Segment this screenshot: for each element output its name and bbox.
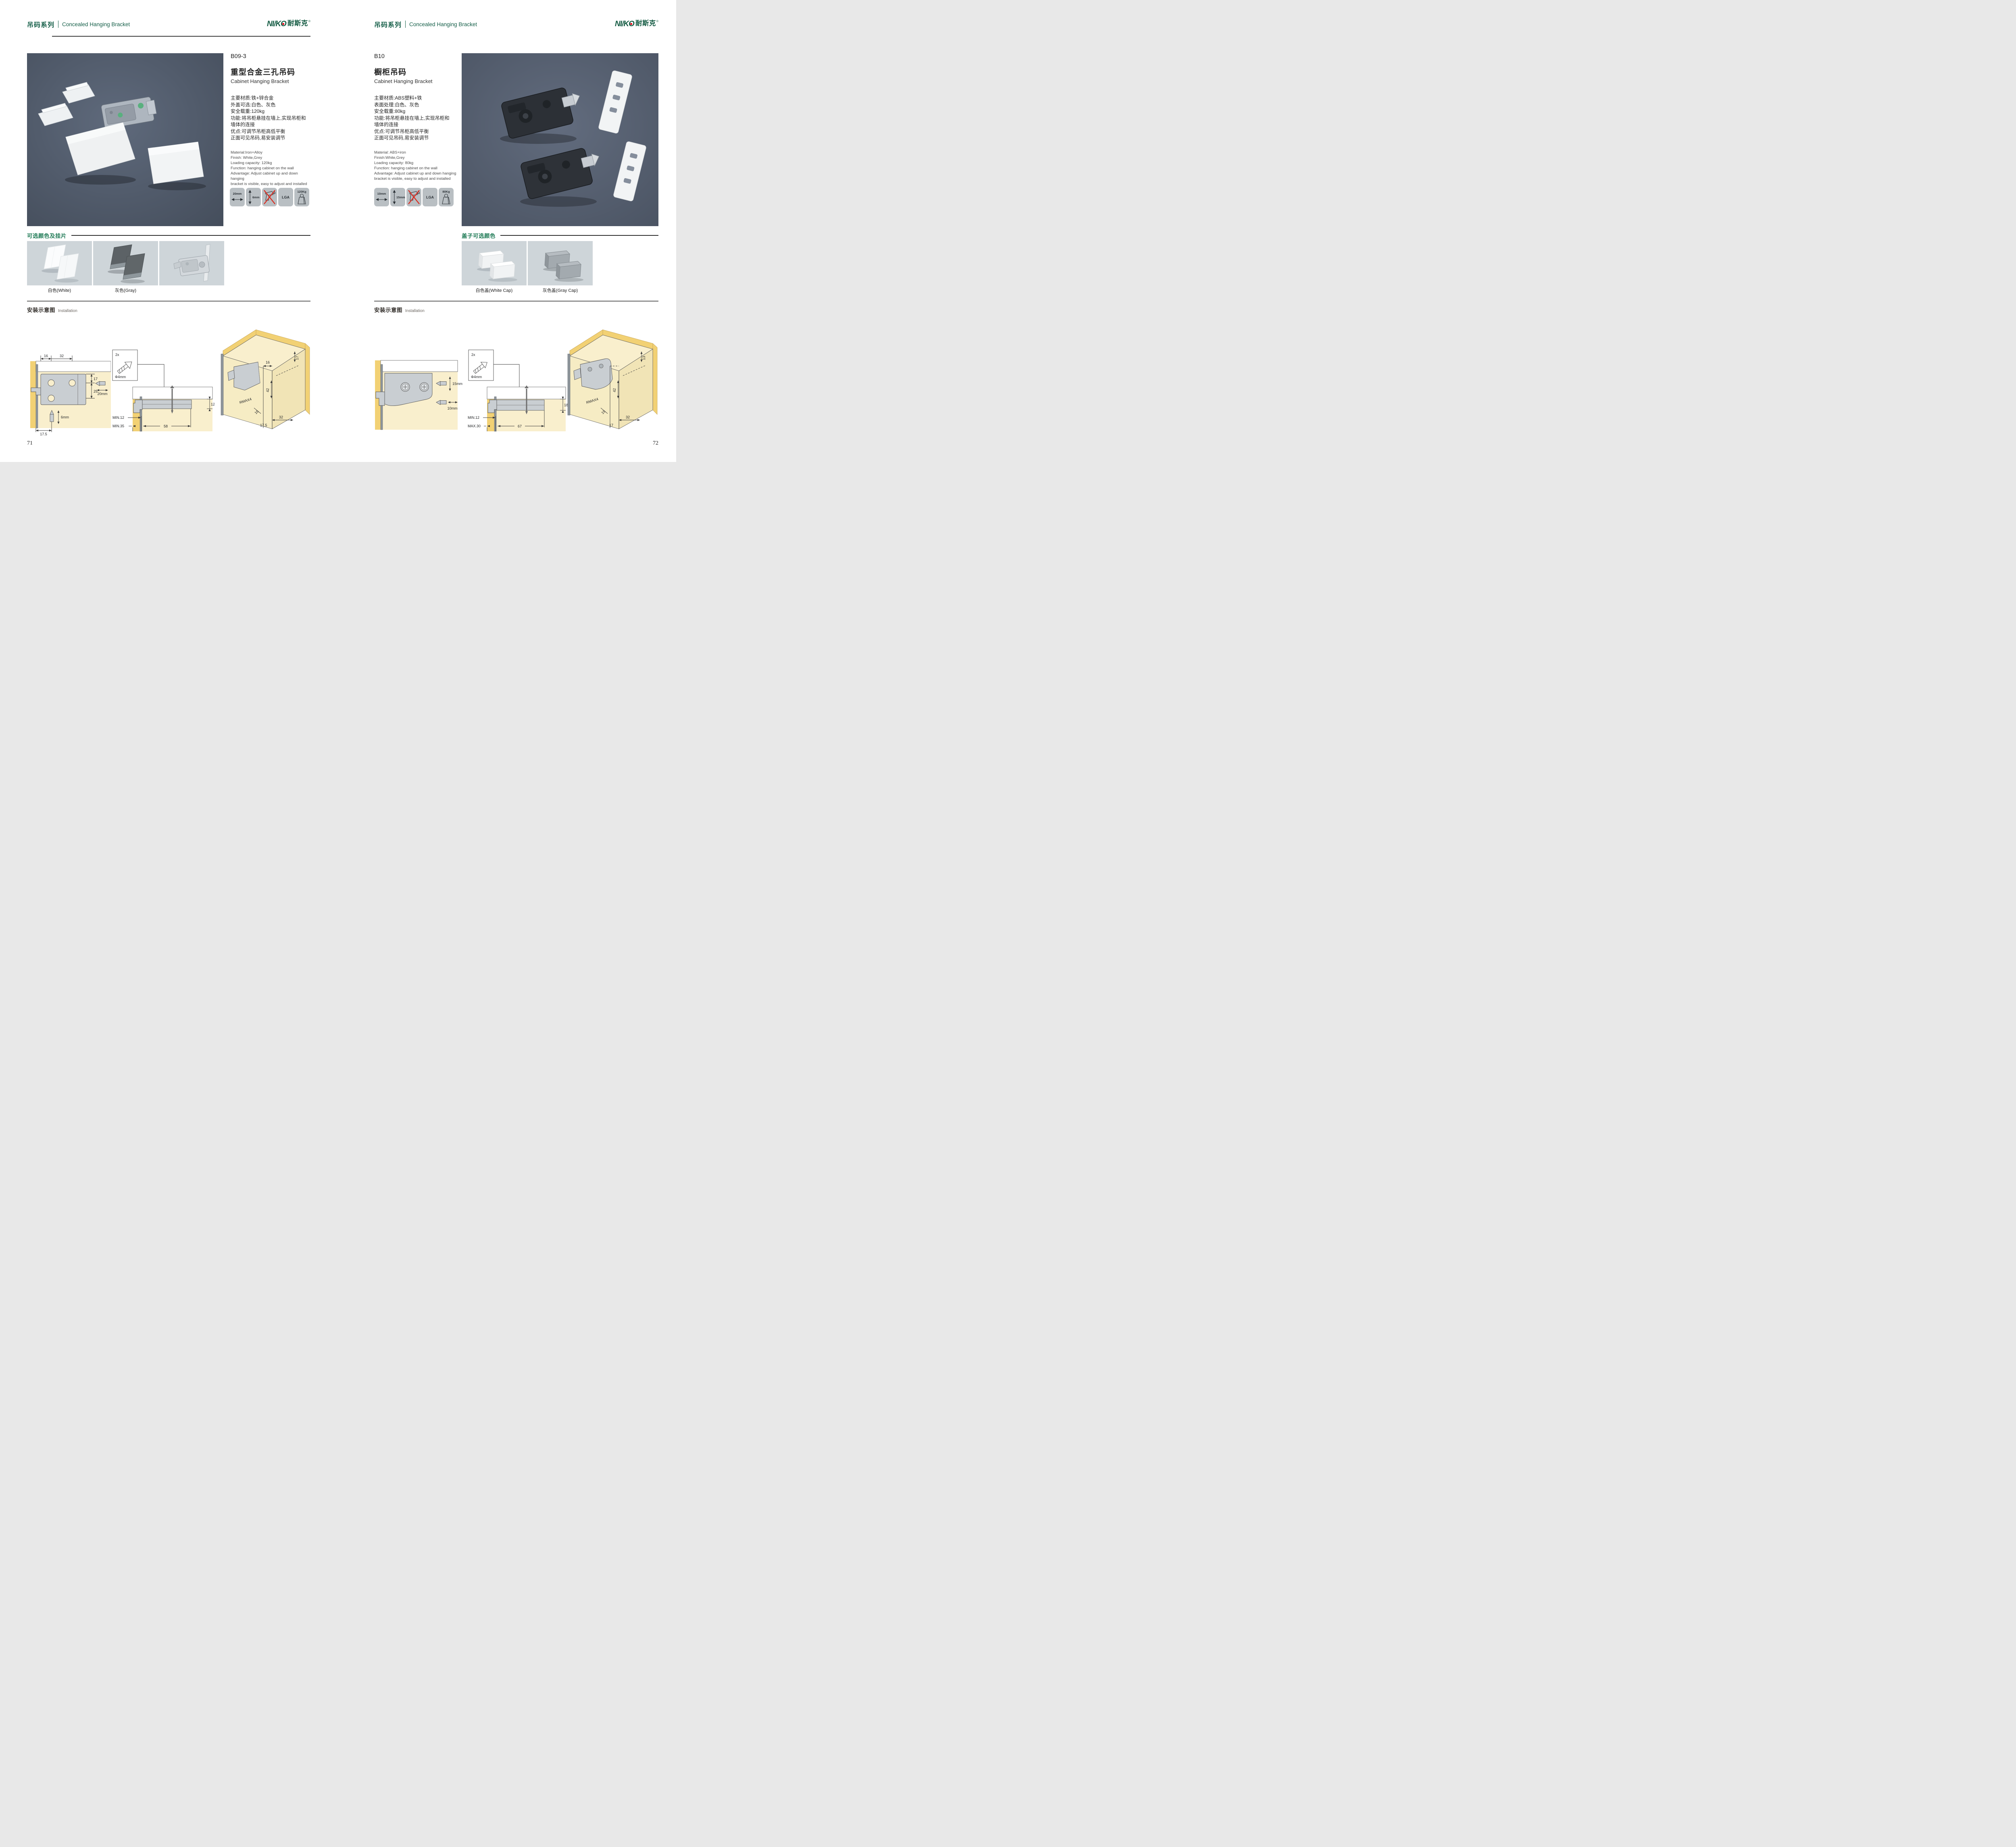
svg-text:MIN.35: MIN.35 xyxy=(112,424,124,428)
spec-line: bracket is visible, easy to adjust and i… xyxy=(374,176,459,181)
spec-line: 表面处理:白色、灰色 xyxy=(374,102,459,108)
load-weight-icon: 120Kg xyxy=(294,188,309,206)
svg-text:12: 12 xyxy=(211,402,215,406)
svg-text:2x: 2x xyxy=(115,353,119,357)
svg-text:58: 58 xyxy=(164,424,168,428)
product-info: B10 橱柜吊码 Cabinet Hanging Bracket 主要材质:AB… xyxy=(374,53,459,181)
svg-text:Φ4mm: Φ4mm xyxy=(115,375,126,379)
installation-diagram-side: 2x Φ4mm xyxy=(468,348,568,437)
svg-text:17.5: 17.5 xyxy=(260,423,267,427)
colors-section-title: 可选颜色及挂片 xyxy=(27,231,67,239)
svg-text:120Kg: 120Kg xyxy=(297,190,306,193)
product-title-en: Cabinet Hanging Bracket xyxy=(374,78,459,84)
installation-diagram-section: 16 32 17 25 20mm xyxy=(30,353,111,438)
specs-en: Material: ABS+iron Finish:White,Grey Loa… xyxy=(374,150,459,181)
svg-text:32: 32 xyxy=(60,354,64,358)
spec-line: Loading capacity: 80kg xyxy=(374,160,459,166)
spec-line: 安全载重:80kg xyxy=(374,108,459,115)
colors-section-header: 盖子可选颜色 xyxy=(462,231,658,239)
svg-text:42: 42 xyxy=(612,388,616,392)
product-title-cn: 重型合金三孔吊码 xyxy=(231,66,311,77)
logo-latin: NI/K xyxy=(267,20,281,28)
svg-text:6mm: 6mm xyxy=(61,415,69,419)
spec-line: 主要材质:ABS塑料+铁 xyxy=(374,95,459,102)
svg-text:67: 67 xyxy=(518,424,522,428)
svg-text:LGA: LGA xyxy=(282,196,289,200)
svg-text:6mm: 6mm xyxy=(252,196,260,199)
series-title-cn: 吊码系列 xyxy=(374,19,402,29)
spec-line: Finish: White,Grey xyxy=(231,155,311,160)
svg-text:16: 16 xyxy=(44,354,48,358)
section-divider xyxy=(27,301,310,302)
product-title-en: Cabinet Hanging Bracket xyxy=(231,78,311,84)
color-swatches xyxy=(462,241,593,285)
feature-icons: 20mm 6mm xyxy=(230,188,309,206)
installation-diagram-perspective: 16 17 42 RMAX4 16 17.5 32 xyxy=(216,327,310,439)
swatch-label: 白色盖(White Cap) xyxy=(462,287,527,293)
svg-text:32: 32 xyxy=(626,415,630,419)
product-code: B09-3 xyxy=(231,53,311,60)
svg-text:42: 42 xyxy=(266,388,270,392)
lga-cert-icon: LGA xyxy=(423,188,437,206)
svg-text:17: 17 xyxy=(295,356,299,360)
svg-text:17: 17 xyxy=(94,377,98,381)
divider-bar xyxy=(58,21,58,28)
svg-text:15mm: 15mm xyxy=(396,196,405,199)
logo-cn: 耐斯克 xyxy=(635,20,656,27)
swatch-gray-covers xyxy=(93,241,158,285)
spec-line: Function: hanging cabinet on the wall xyxy=(231,166,311,171)
spec-line: 正面可见吊码,易安装调节 xyxy=(374,135,459,141)
swatch-bracket-hardware xyxy=(159,241,224,285)
spec-line: Loading capacity: 120kg xyxy=(231,160,311,166)
width-arrow-icon: 20mm xyxy=(230,188,245,206)
installation-diagram-perspective: 13 42 RMAX4 19 17 32 xyxy=(562,327,658,439)
spec-line: Function: hanging cabinet on the wall xyxy=(374,166,459,171)
svg-text:MIN.12: MIN.12 xyxy=(468,416,479,420)
swatch-white-covers xyxy=(27,241,92,285)
series-title-cn: 吊码系列 xyxy=(27,19,54,29)
height-arrow-icon: 6mm xyxy=(246,188,261,206)
no-drill-icon xyxy=(406,188,421,206)
spec-line: Finish:White,Grey xyxy=(374,155,459,160)
load-weight-icon: 80Kg xyxy=(439,188,454,206)
svg-text:15mm: 15mm xyxy=(452,382,462,386)
spec-line: 正面可见吊码,易安装调节 xyxy=(231,135,311,141)
logo-o: O xyxy=(281,20,286,28)
page-72: 吊码系列 Concealed Hanging Bracket NI/K O 耐斯… xyxy=(374,0,658,462)
product-title-cn: 橱柜吊码 xyxy=(374,66,459,77)
page-71: 吊码系列 Concealed Hanging Bracket NI/K O 耐斯… xyxy=(27,0,310,462)
installation-title-en: Installation xyxy=(58,309,77,313)
spec-line: 优点:可调节吊柜高低平衡 xyxy=(231,128,311,135)
svg-text:17.5: 17.5 xyxy=(40,432,47,436)
installation-title-en: Installation xyxy=(405,309,425,313)
svg-text:32: 32 xyxy=(279,415,283,419)
specs-cn: 主要材质:铁+锌合金 外盖可选:白色、灰色 安全载重:120kg 功能:将吊柜悬… xyxy=(231,95,311,141)
product-info: B09-3 重型合金三孔吊码 Cabinet Hanging Bracket 主… xyxy=(231,53,311,187)
logo-cn: 耐斯克 xyxy=(287,20,308,27)
spec-line: 外盖可选:白色、灰色 xyxy=(231,102,311,108)
installation-header: 安装示意图 Installation xyxy=(27,306,77,314)
swatch-label: 灰色盖(Gray Cap) xyxy=(528,287,593,293)
series-title-en: Concealed Hanging Bracket xyxy=(409,21,477,27)
installation-diagram-side: 2x Φ4mm xyxy=(112,348,215,437)
logo-latin: NI/K xyxy=(615,20,629,28)
svg-text:17: 17 xyxy=(609,423,613,427)
page-header: 吊码系列 Concealed Hanging Bracket NI/K O 耐斯… xyxy=(27,19,310,36)
spec-line: 主要材质:铁+锌合金 xyxy=(231,95,311,102)
colors-section-header: 可选颜色及挂片 xyxy=(27,231,310,239)
swatch-white-cap xyxy=(462,241,527,285)
colors-section-title: 盖子可选颜色 xyxy=(462,231,496,239)
color-swatches xyxy=(27,241,224,285)
divider-bar xyxy=(405,21,406,28)
catalog-spread: 吊码系列 Concealed Hanging Bracket NI/K O 耐斯… xyxy=(0,0,676,462)
page-number: 71 xyxy=(27,440,33,447)
spec-line: bracket is visible, easy to adjust and i… xyxy=(231,181,311,187)
spec-line: 优点:可调节吊柜高低平衡 xyxy=(374,128,459,135)
registered-mark: ® xyxy=(656,20,658,23)
product-photo-b09-3 xyxy=(27,53,223,226)
swatch-gray-cap xyxy=(528,241,593,285)
svg-text:20mm: 20mm xyxy=(97,392,107,396)
product-photo-b10 xyxy=(462,53,658,226)
spec-line: 安全载重:120kg xyxy=(231,108,311,115)
spec-line: 功能:将吊柜悬挂在墙上,实现吊柜和 xyxy=(374,115,459,122)
svg-text:80Kg: 80Kg xyxy=(442,190,450,193)
specs-cn: 主要材质:ABS塑料+铁 表面处理:白色、灰色 安全载重:80kg 功能:将吊柜… xyxy=(374,95,459,141)
spec-line: 墙体的连接 xyxy=(374,121,459,128)
spec-line: 墙体的连接 xyxy=(231,121,311,128)
no-drill-icon xyxy=(262,188,277,206)
page-header: 吊码系列 Concealed Hanging Bracket NI/K O 耐斯… xyxy=(374,19,658,36)
svg-text:LGA: LGA xyxy=(426,196,434,200)
swatch-label: 灰色(Gray) xyxy=(93,287,158,293)
svg-text:13: 13 xyxy=(642,356,646,360)
nisko-logo: NI/K O 耐斯克 ® xyxy=(267,20,310,28)
section-rule xyxy=(71,235,310,236)
specs-en: Material:Iron+Alloy Finish: White,Grey L… xyxy=(231,150,311,187)
series-title-en: Concealed Hanging Bracket xyxy=(62,21,130,27)
installation-header: 安装示意图 Installation xyxy=(374,306,425,314)
spec-line: 功能:将吊柜悬挂在墙上,实现吊柜和 xyxy=(231,115,311,122)
svg-text:10mm: 10mm xyxy=(447,406,457,410)
product-code: B10 xyxy=(374,53,459,60)
svg-text:2x: 2x xyxy=(471,353,475,357)
lga-cert-icon: LGA xyxy=(278,188,293,206)
svg-text:MAX.30: MAX.30 xyxy=(468,424,481,428)
height-arrow-icon: 15mm xyxy=(390,188,405,206)
page-number: 72 xyxy=(653,440,658,447)
svg-text:Φ4mm: Φ4mm xyxy=(471,375,482,379)
logo-o: O xyxy=(629,20,634,28)
registered-mark: ® xyxy=(308,20,310,23)
svg-text:MIN.12: MIN.12 xyxy=(112,416,124,420)
spec-line: Advantage: Adjust cabinet up and down ha… xyxy=(231,171,311,181)
spec-line: Material: ABS+iron xyxy=(374,150,459,155)
section-rule xyxy=(500,235,658,236)
nisko-logo: NI/K O 耐斯克 ® xyxy=(615,20,658,28)
swatch-label: 白色(White) xyxy=(27,287,92,293)
svg-text:20mm: 20mm xyxy=(233,192,242,196)
installation-title-cn: 安装示意图 xyxy=(27,306,55,314)
spec-line: Advantage: Adjust cabinet up and down ha… xyxy=(374,171,459,176)
header-rule xyxy=(52,36,310,37)
feature-icons: 10mm 15mm xyxy=(374,188,454,206)
svg-text:10mm: 10mm xyxy=(377,192,386,196)
spec-line: Material:Iron+Alloy xyxy=(231,150,311,155)
width-arrow-icon: 10mm xyxy=(374,188,389,206)
svg-text:16: 16 xyxy=(266,360,270,364)
installation-title-cn: 安装示意图 xyxy=(374,306,402,314)
installation-diagram-adjust: 15mm 10mm xyxy=(375,353,466,436)
section-divider xyxy=(374,301,658,302)
